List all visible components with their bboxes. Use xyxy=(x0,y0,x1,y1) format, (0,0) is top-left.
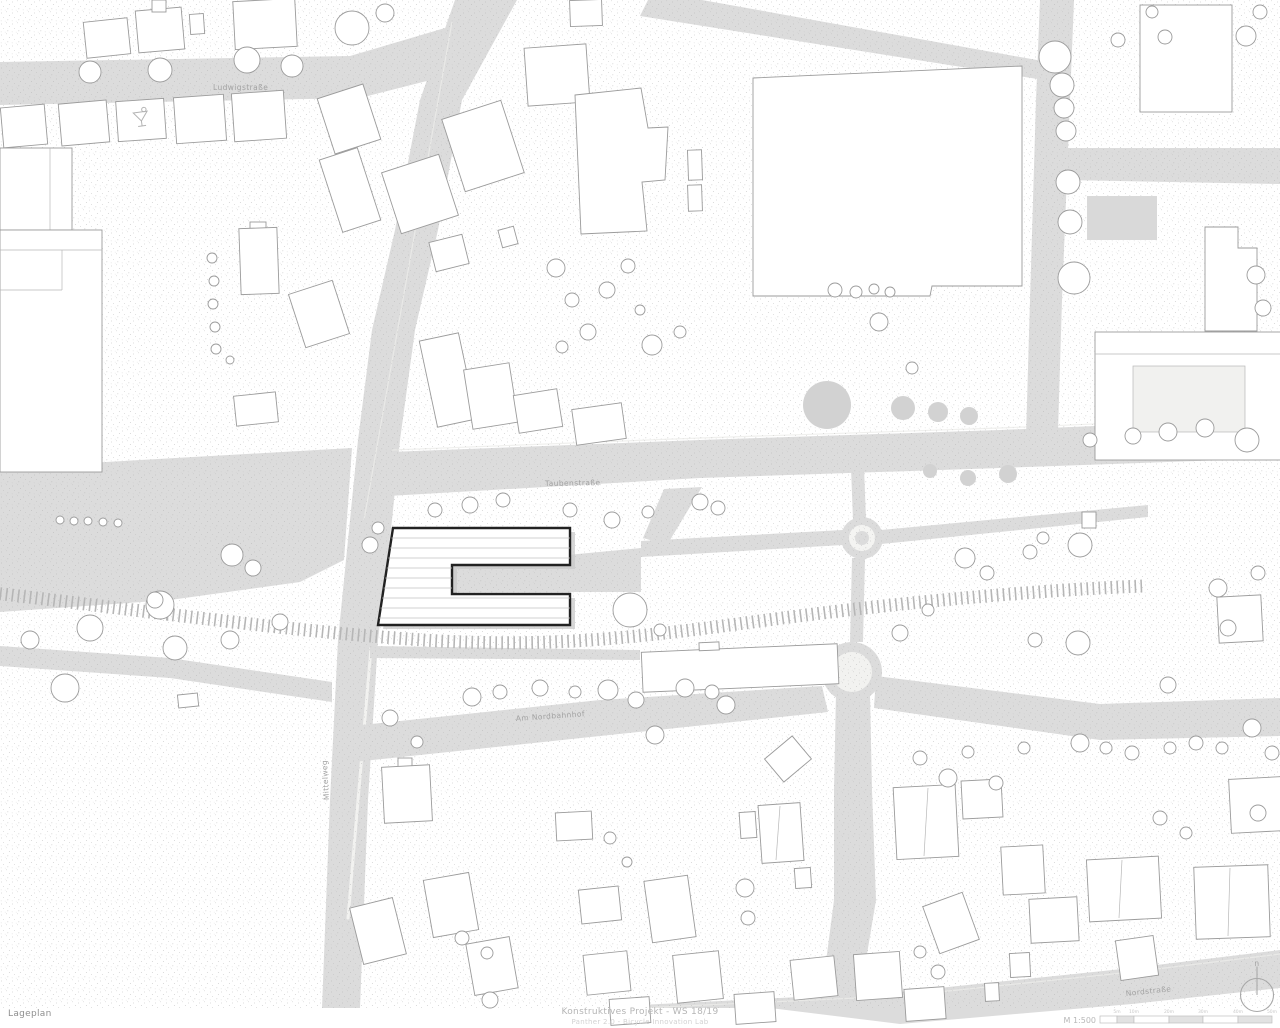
scale-tick: 5m xyxy=(1113,1009,1120,1015)
site-plan-sheet: Ludwigstraße Taubenstraße Am Nordbahnhof… xyxy=(0,0,1280,1028)
scale-tick: 40m xyxy=(1233,1009,1243,1015)
scale-tick: 10m xyxy=(1129,1009,1139,1015)
project-title: Konstruktives Projekt - WS 18/19 xyxy=(562,1007,719,1017)
scale-tick: 30m xyxy=(1198,1009,1208,1015)
scale-tick: 20m xyxy=(1164,1009,1174,1015)
scale-label: M 1:500 xyxy=(1064,1016,1097,1025)
site-plan-map: Ludwigstraße Taubenstraße Am Nordbahnhof… xyxy=(0,0,1280,1028)
title-block: Lageplan Konstruktives Projekt - WS 18/1… xyxy=(8,1007,1277,1026)
plan-title: Lageplan xyxy=(8,1009,52,1019)
north-arrow-letter: n xyxy=(1254,959,1259,968)
label-ludwigstrasse: Ludwigstraße xyxy=(213,83,268,92)
project-subtitle: Panther 2.0 - Bicycle Innovation Lab xyxy=(571,1018,708,1026)
label-taubenstrasse: Taubenstraße xyxy=(544,478,601,488)
scale-bar: 5m 10m 20m 30m 40m 50m xyxy=(1100,1009,1277,1023)
scale-tick: 50m xyxy=(1267,1009,1277,1015)
